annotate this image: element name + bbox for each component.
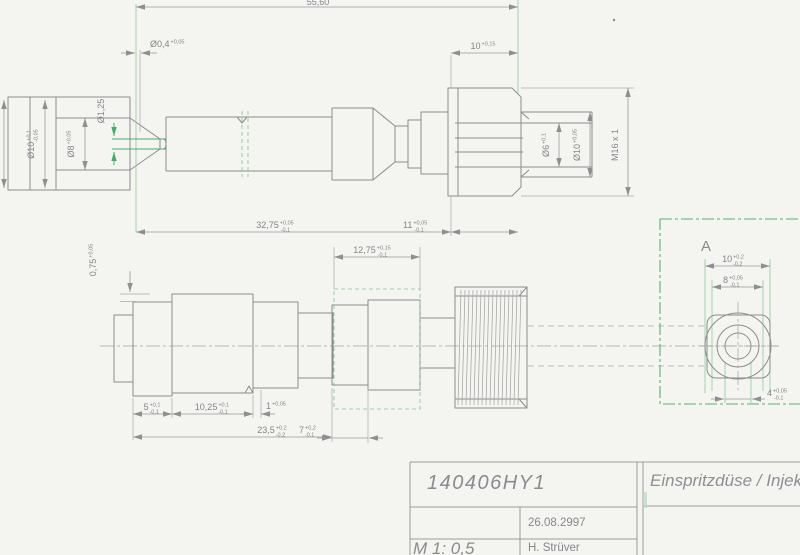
dim-l1-label: 1+0,05 <box>266 401 286 411</box>
thread-hatching <box>458 290 521 405</box>
dim-len10-label: 10+0,15 <box>471 41 496 51</box>
scan-smudge <box>643 492 647 508</box>
green-extension-lines <box>136 0 518 232</box>
detail-view-label: A <box>701 238 711 255</box>
side-view: 0,75+0,05 5+0,1-0,1 10,25+0,1-0,1 1+0,05… <box>88 244 779 443</box>
detail-view-a: A 10+0,2-0,2 8+0,05-0,1 4+0,05-0,1 <box>660 219 800 404</box>
part-number: 140406HY1 <box>427 472 546 494</box>
title-block: 140406HY1 Einspritzdüse / Injektor 26.08… <box>410 462 800 555</box>
dim-l5-label: 5+0,1-0,1 <box>144 402 161 416</box>
detail-square-outline <box>707 315 770 378</box>
dim-a4-label: 4+0,05-0,1 <box>767 388 787 402</box>
dim-l7-label: 7+0,2-0,1 <box>299 425 316 439</box>
scan-speck <box>613 19 615 21</box>
dim-l235-label: 23,5+0,2-0,2 <box>257 425 286 439</box>
dim-d10r-label: Ø10+0,05 <box>572 129 582 161</box>
engineering-drawing: 55,60 Ø0,4+0,05 10+0,15 Ø10+0,1-0,05 Ø8+… <box>0 0 800 555</box>
dim-total-label: 55,60 <box>307 0 330 7</box>
drawing-scale: M 1: 0,5 <box>413 539 475 555</box>
dim-a8-label: 8+0,05-0,1 <box>723 275 743 289</box>
dim-d6-label: Ø6+0,1 <box>541 133 551 157</box>
needle-hidden-lines <box>242 111 248 177</box>
scanned-technical-drawing: 55,60 Ø0,4+0,05 10+0,15 Ø10+0,1-0,05 Ø8+… <box>0 0 800 555</box>
detail-zone-box <box>334 289 420 409</box>
dim-l11-label: 11+0,05-0,1 <box>403 220 427 234</box>
dim-l3275-label: 32,75+0,05-0,1 <box>256 220 293 234</box>
dim-a10-label: 10+0,2-0,2 <box>722 254 744 268</box>
drawing-author: H. Strüver <box>528 542 580 554</box>
dim-d8-label: Ø8+0,05 <box>66 131 76 158</box>
dim-hole-label: Ø0,4+0,05 <box>150 39 184 49</box>
detail-border <box>660 219 800 404</box>
dim-d125-lines <box>112 139 166 149</box>
dim-l1275-label: 12,75+0,15-0,1 <box>353 245 390 259</box>
top-view: 55,60 Ø0,4+0,05 10+0,15 Ø10+0,1-0,05 Ø8+… <box>4 0 634 289</box>
dim-l1025-label: 10,25+0,1-0,1 <box>195 402 229 416</box>
drawing-title: Einspritzdüse / Injektor <box>650 471 800 490</box>
part-outline-lower <box>114 287 527 408</box>
lower-extension-lines <box>120 294 368 443</box>
dim-s075-label: 0,75+0,05 <box>88 244 98 276</box>
dim-m16-label: M16 x 1 <box>610 129 620 161</box>
drawing-date: 26.08.2997 <box>528 517 586 529</box>
dim-d125-label: Ø1,25 <box>96 99 106 124</box>
dim-d10l-label: Ø10+0,1-0,05 <box>26 129 40 158</box>
